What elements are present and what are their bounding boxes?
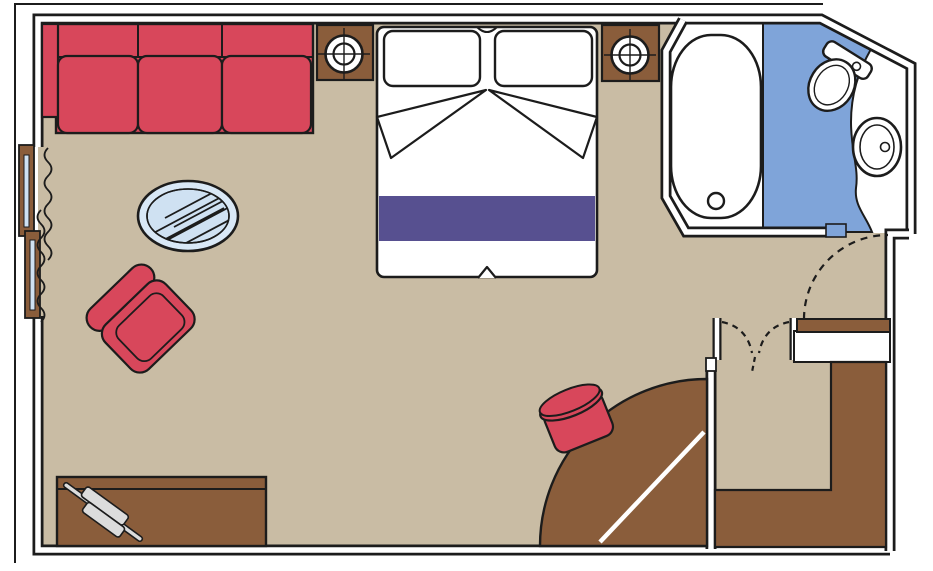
sink-tap: [881, 143, 890, 152]
bathroom-door-leaf: [826, 224, 846, 237]
door-glass: [24, 155, 29, 227]
door-jamb-cap: [706, 358, 716, 371]
vestibule-shelf: [797, 319, 890, 332]
balcony-sliding-door: [19, 145, 40, 318]
bed-runner: [379, 196, 595, 241]
pillow: [384, 31, 480, 86]
desk: [57, 474, 266, 550]
sofa-cushion: [222, 56, 311, 133]
sink: [853, 118, 901, 176]
bathtub-drain: [708, 193, 724, 209]
door-glass: [30, 240, 35, 310]
nightstand-left: [317, 25, 373, 80]
cabin-floorplan: [0, 0, 933, 571]
sofa-cushion: [138, 56, 222, 133]
nightstand-right: [602, 25, 659, 81]
vestibule-counter: [794, 331, 890, 362]
bathtub: [671, 35, 761, 218]
floorplan-svg: [0, 0, 933, 571]
pillow: [495, 31, 592, 86]
sofa: [42, 24, 313, 133]
double-bed: [377, 27, 597, 278]
sofa-armrest: [42, 24, 58, 117]
sofa-cushion: [58, 56, 138, 133]
